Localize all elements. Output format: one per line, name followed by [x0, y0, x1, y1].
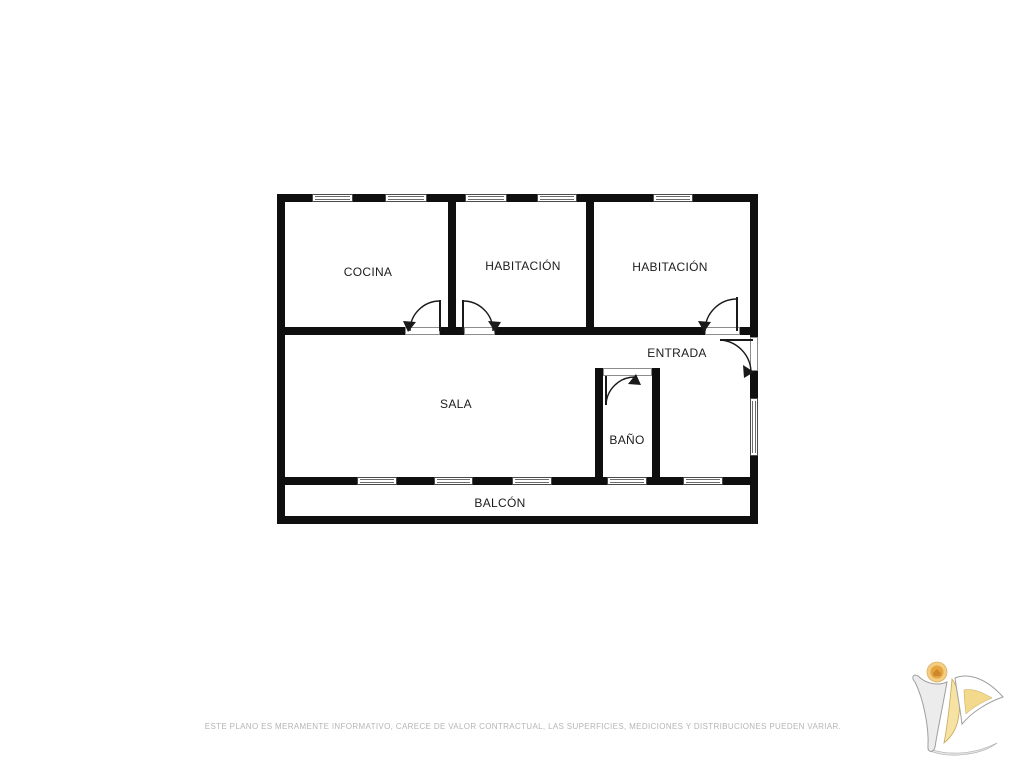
- door-swing-habitacion-1: [463, 300, 501, 332]
- door-swing-habitacion-2: [698, 297, 737, 332]
- room-label-cocina: COCINA: [344, 265, 392, 279]
- room-label-sala: SALA: [440, 397, 472, 411]
- door-swing-bano: [606, 374, 641, 405]
- floor-plan: COCINA HABITACIÓN HABITACIÓN ENTRADA SAL…: [277, 194, 758, 524]
- room-label-habitacion-1: HABITACIÓN: [485, 259, 560, 273]
- room-label-balcon: BALCÓN: [474, 496, 525, 510]
- agency-logo: [900, 650, 1010, 768]
- floor-plan-page: COCINA HABITACIÓN HABITACIÓN ENTRADA SAL…: [0, 0, 1024, 768]
- room-label-bano: BAÑO: [609, 433, 644, 447]
- door-swing-cocina: [403, 300, 440, 332]
- logo-gray-sail: [913, 675, 947, 751]
- room-label-habitacion-2: HABITACIÓN: [632, 260, 707, 274]
- door-swing-entrada: [720, 340, 754, 378]
- disclaimer-text: ESTE PLANO ES MERAMENTE INFORMATIVO, CAR…: [205, 722, 841, 731]
- room-label-entrada: ENTRADA: [647, 346, 706, 360]
- logo-underline-swoosh: [928, 743, 997, 755]
